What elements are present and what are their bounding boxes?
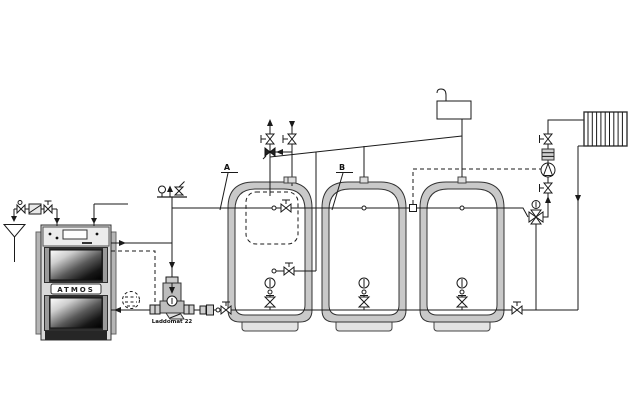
tank-top-stub bbox=[458, 177, 466, 183]
vent-hook-icon bbox=[437, 89, 446, 101]
control-display bbox=[63, 230, 87, 239]
optional-pump-icon bbox=[123, 292, 140, 309]
dashed-bypass bbox=[111, 251, 155, 307]
port-stub bbox=[272, 269, 276, 273]
funnel-drain-icon bbox=[4, 225, 25, 238]
shutoff-valve-icon bbox=[283, 134, 296, 144]
wood-boiler: ATMOS bbox=[36, 225, 116, 340]
flow-arrow-up-icon bbox=[545, 196, 551, 203]
three-way-valve-icon bbox=[263, 148, 275, 159]
panel-slot bbox=[82, 242, 92, 244]
shutoff-valve-icon bbox=[44, 201, 52, 213]
flow-arrow-down-icon bbox=[289, 121, 295, 128]
laddomat-top-fitting bbox=[166, 277, 178, 283]
optional-pump-dashed bbox=[123, 292, 140, 309]
buffer-tank-a bbox=[228, 177, 312, 331]
flow-arrow-left-icon bbox=[276, 149, 283, 155]
vent-arrow-up-icon bbox=[167, 186, 173, 193]
flow-arrow-up-icon bbox=[267, 119, 273, 126]
connection-point bbox=[410, 205, 417, 212]
port-stub bbox=[362, 290, 366, 294]
laddomat-label: Laddomat 22 bbox=[152, 319, 193, 325]
door-hinge-strip bbox=[45, 248, 49, 282]
tank-top-stub bbox=[288, 177, 296, 183]
port-stub bbox=[362, 206, 366, 210]
laddomat-22-unit: Laddomat 22 bbox=[150, 277, 194, 325]
flow-arrow-down-icon bbox=[91, 218, 97, 224]
port-stub bbox=[268, 290, 272, 294]
boiler-safety-group bbox=[157, 182, 187, 198]
tank-top-stub bbox=[360, 177, 368, 183]
heating-schematic: ATMOS bbox=[0, 0, 630, 420]
door-hinge-strip bbox=[45, 296, 49, 330]
port-stub bbox=[460, 290, 464, 294]
check-valve-icon bbox=[17, 201, 25, 214]
union-coupling bbox=[200, 305, 214, 315]
port-stub bbox=[272, 206, 276, 210]
strainer-filter-icon bbox=[29, 204, 41, 214]
panel-knob bbox=[96, 233, 99, 236]
door-hinge-strip bbox=[103, 296, 107, 330]
tank-b-label: B bbox=[339, 163, 345, 172]
four-way-mixing-valve-icon bbox=[529, 201, 543, 225]
shutoff-valve-icon bbox=[540, 183, 553, 193]
circulation-pump-icon bbox=[541, 163, 555, 177]
lower-door bbox=[50, 298, 102, 328]
tank-a-label: A bbox=[224, 163, 231, 172]
port-stub bbox=[460, 206, 464, 210]
open-expansion-tank bbox=[437, 101, 471, 119]
flow-arrow-down-icon bbox=[169, 262, 175, 269]
panel-knob bbox=[56, 237, 59, 240]
shutoff-valve-icon bbox=[512, 302, 522, 314]
flow-arrow-down-icon bbox=[575, 195, 581, 202]
pressure-gauge-icon bbox=[159, 186, 166, 193]
schematic-page: ATMOS bbox=[0, 0, 630, 420]
upper-door bbox=[50, 250, 102, 280]
flow-arrow-down-icon bbox=[11, 216, 17, 222]
boiler-base bbox=[45, 331, 107, 340]
buffer-tank-c bbox=[420, 177, 504, 331]
safety-valve-icon bbox=[175, 182, 185, 196]
shutoff-valve-icon bbox=[261, 134, 274, 144]
flow-arrow-right-icon bbox=[119, 240, 126, 246]
panel-knob bbox=[49, 233, 52, 236]
flow-arrow-down-icon bbox=[54, 218, 60, 224]
port-stub bbox=[216, 308, 220, 312]
door-hinge-strip bbox=[103, 248, 107, 282]
shutoff-valve-icon bbox=[540, 134, 553, 144]
radiator-icon bbox=[584, 112, 627, 146]
expansion-vessel bbox=[437, 89, 471, 119]
boiler-brand-label: ATMOS bbox=[57, 286, 95, 294]
buffer-tanks bbox=[228, 177, 504, 331]
filter-fitting-icon bbox=[542, 149, 554, 160]
